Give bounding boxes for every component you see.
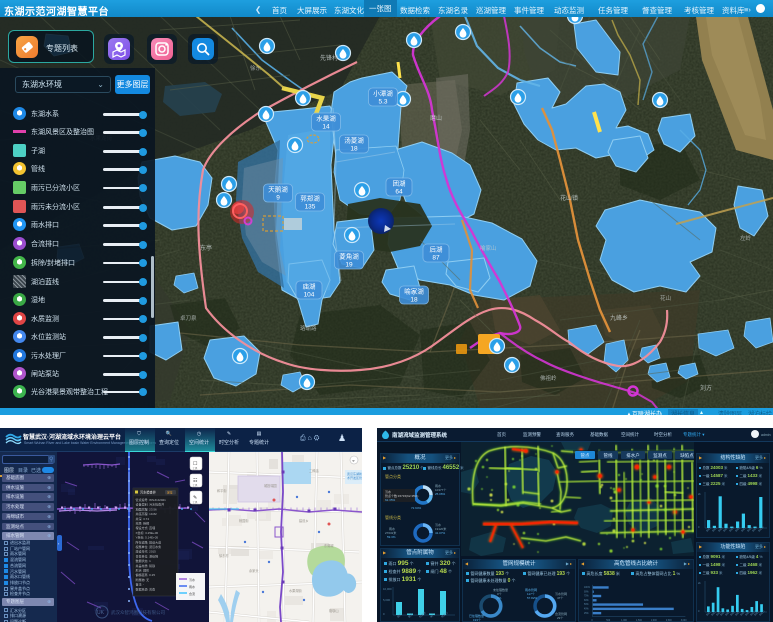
svg-text:菱角湖: 菱角湖 [339,252,359,261]
svg-text:工具: 工具 [193,500,199,504]
svg-text:形状: 圆形: 形状: 圆形 [136,568,150,573]
svg-text:5.3: 5.3 [378,99,387,106]
svg-text:井盖材质: 铸铁: 井盖材质: 铸铁 [136,563,156,568]
svg-text:2k: 2k [698,582,701,585]
svg-text:19: 19 [345,262,353,269]
svg-text:郭郑湖: 郭郑湖 [300,194,320,203]
svg-text:管点: 管点 [581,452,590,459]
svg-text:100%: 100% [584,587,590,589]
svg-text:合流: 合流 [189,591,195,596]
svg-text:井深: 3.74: 井深: 3.74 [136,516,150,521]
svg-text:井底高程: 19.82: 井底高程: 19.82 [136,511,158,516]
svg-text:先锋村: 先锋村 [320,54,338,62]
svg-text:⌖: ⌖ [352,459,355,465]
svg-text:2k: 2k [698,493,701,496]
svg-text:污水: 污水 [189,577,195,582]
svg-text:备注: -: 备注: - [136,582,145,587]
svg-text:41.07%: 41.07% [435,531,446,535]
svg-text:建设乡: 建设乡 [299,518,309,523]
svg-text:64: 64 [395,189,403,196]
svg-text:卓刀泉: 卓刀泉 [180,314,197,322]
svg-text:25.06%: 25.06% [435,492,446,496]
svg-text:数据来源: 普查: 数据来源: 普查 [136,586,156,591]
svg-text:75%: 75% [584,596,589,598]
svg-text:偏移距离: 0.25: 偏移距离: 0.25 [136,572,156,577]
svg-text:87: 87 [432,255,440,262]
svg-text:刘方: 刘方 [700,384,712,392]
svg-text:缺陷点: 缺陷点 [680,452,694,459]
svg-text:59.3%: 59.3% [387,535,396,539]
svg-text:水果湖: 水果湖 [316,114,336,123]
svg-text:磨山: 磨山 [430,114,442,122]
svg-text:50%: 50% [584,604,589,606]
svg-text:工具: 工具 [193,466,199,470]
svg-text:10,000: 10,000 [383,587,392,591]
svg-text:雨水: 雨水 [189,584,195,589]
svg-text:团湖: 团湖 [393,179,407,188]
svg-text:60%: 60% [584,600,589,602]
svg-text:0: 0 [383,612,385,616]
svg-text:花山镇: 花山镇 [560,194,578,202]
svg-text:72.94%: 72.94% [411,506,422,510]
svg-text:设备类别: 污水检查井: 设备类别: 污水检查井 [136,502,165,507]
svg-text:14: 14 [322,124,330,131]
svg-text:水果湖街: 水果湖街 [289,588,303,593]
svg-text:闸门: 闸门 [429,612,436,619]
svg-text:工具: 工具 [193,483,199,487]
svg-text:佛祖岭: 佛祖岭 [540,374,557,382]
svg-text:天鹅湖: 天鹅湖 [268,185,288,194]
svg-text:57.82%: 57.82% [527,596,538,600]
svg-text:徐东村: 徐东村 [219,553,229,558]
svg-text:管点编号: WSJCJ2021: 管点编号: WSJCJ2021 [136,497,167,502]
svg-text:18: 18 [410,297,418,304]
svg-text:花山: 花山 [660,294,671,302]
svg-text:62.35%: 62.35% [385,498,396,502]
svg-text:窨井: 窨井 [407,612,414,619]
svg-text:X坐标: 3.25E+06: X坐标: 3.25E+06 [136,530,159,535]
svg-text:普查单位: 测绘院: 普查单位: 测绘院 [136,553,159,558]
svg-text:埋设方式: 直埋: 埋设方式: 直埋 [136,525,156,530]
svg-text:建设年代: 2015: 建设年代: 2015 [136,549,157,554]
svg-text:污水检查井: 污水检查井 [140,490,156,495]
svg-text:47个: 47个 [557,596,563,600]
svg-text:0: 0 [698,610,700,613]
svg-text:0%: 0% [497,596,502,600]
svg-text:喻家湖: 喻家湖 [404,287,424,296]
svg-text:所在道路: 建设大道: 所在道路: 建设大道 [136,539,162,544]
svg-text:左岭: 左岭 [740,234,752,242]
svg-text:管段5: 管段5 [728,525,735,532]
svg-text:25%: 25% [584,613,589,615]
svg-text:193个: 193个 [473,618,481,622]
svg-text:杨园街: 杨园街 [239,518,249,523]
svg-text:管线: 管线 [604,452,613,459]
svg-text:监测点: 监测点 [653,452,667,459]
svg-text:材质: 砖砌: 材质: 砖砌 [136,521,150,526]
svg-text:Y坐标: 5.14E+05: Y坐标: 5.14E+05 [136,535,159,540]
svg-text:9: 9 [276,195,280,202]
svg-text:东湖城: 东湖城 [324,543,334,548]
svg-text:东亭: 东亭 [200,244,212,252]
svg-text:汤菱湖: 汤菱湖 [344,136,364,145]
svg-text:18: 18 [350,146,358,153]
svg-text:90%: 90% [584,591,589,593]
svg-text:附属物: 无: 附属物: 无 [136,577,150,582]
svg-text:0: 0 [698,526,700,529]
svg-text:和平街: 和平街 [217,488,227,493]
svg-text:小潭湖: 小潭湖 [373,89,393,98]
svg-text:权属单位: 武汉水务: 权属单位: 武汉水务 [136,544,162,549]
svg-text:29个: 29个 [557,616,563,620]
svg-text:135: 135 [305,204,316,211]
svg-text:地面高程: 23.56: 地面高程: 23.56 [136,506,158,511]
svg-text:城投瑞园: 城投瑞园 [264,483,277,488]
svg-text:九峰乡: 九峰乡 [610,314,628,322]
svg-text:武汉众智鸿图科技有限公司: 武汉众智鸿图科技有限公司 [111,609,165,616]
svg-text:喻家山: 喻家山 [480,244,497,252]
svg-text:40%: 40% [584,609,589,611]
svg-text:104: 104 [304,292,315,299]
svg-text:术开发区管网: 术开发区管网 [347,475,362,480]
svg-text:5,000: 5,000 [383,598,390,602]
svg-text:排水户: 排水户 [626,452,640,459]
svg-text:数据状态: 1: 数据状态: 1 [136,558,152,563]
svg-text:庙湖: 庙湖 [303,282,317,291]
svg-text:珞瑜路: 珞瑜路 [300,324,317,332]
svg-text:后湖: 后湖 [430,245,444,254]
svg-text:珞珈山: 珞珈山 [329,608,339,613]
svg-text:余家头: 余家头 [249,568,259,573]
svg-text:二郎庙: 二郎庙 [309,468,319,473]
svg-text:定位: 定位 [167,491,173,495]
svg-text:UK: UK [97,610,105,616]
